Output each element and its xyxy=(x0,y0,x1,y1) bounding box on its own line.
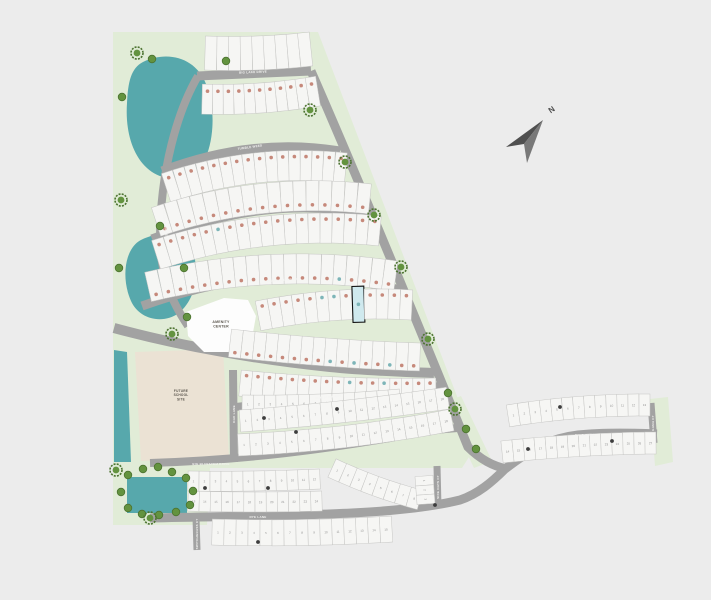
lot-group: 23 xyxy=(600,433,612,455)
tree-icon xyxy=(118,93,126,101)
lot-number: 10 xyxy=(291,478,295,482)
lot-group xyxy=(306,181,319,211)
lot-number: 21 xyxy=(281,500,285,504)
tree-icon xyxy=(186,501,194,509)
lot-number: 18 xyxy=(550,445,554,449)
lot-group: 1 xyxy=(238,433,251,456)
lot-number: 11 xyxy=(621,403,625,407)
tree-icon xyxy=(472,445,480,453)
lot-group xyxy=(340,290,353,321)
lot-group: 23 xyxy=(299,491,311,511)
lot-row: 131415161718192021222324 xyxy=(188,491,323,512)
lot-number: 13 xyxy=(360,529,364,533)
lot-number: 26 xyxy=(638,441,642,445)
lot[interactable] xyxy=(328,290,342,321)
lot-group: 19 xyxy=(255,492,266,512)
lot-group xyxy=(246,255,261,286)
lot-group: 26 xyxy=(634,432,645,454)
lot-number: 19 xyxy=(259,500,263,504)
lot-group: 2 xyxy=(249,433,262,456)
map-marker-dot xyxy=(610,439,614,443)
lot-group: 3 xyxy=(210,471,221,491)
lot-group: 5 xyxy=(260,520,272,546)
lot-group xyxy=(328,290,342,321)
lot[interactable] xyxy=(240,36,252,70)
tree-icon xyxy=(168,468,176,476)
lot-group xyxy=(336,339,350,368)
tree-icon xyxy=(180,264,188,272)
lot-group xyxy=(223,84,234,114)
lot-row: 123456789101112131415 xyxy=(212,516,393,546)
lot-number: 15 xyxy=(384,527,388,531)
lot-group xyxy=(388,289,401,319)
lot-number: 22 xyxy=(594,443,598,447)
lot-group xyxy=(331,181,345,212)
lot-group xyxy=(312,337,326,366)
lot-status-dot xyxy=(216,89,220,93)
lot-group: 7 xyxy=(284,520,296,546)
lot-group: 4 xyxy=(274,406,287,429)
lot-number: 23 xyxy=(605,442,609,446)
lot-group: 10 xyxy=(320,519,333,545)
lot-group: 10 xyxy=(606,394,618,416)
lot-group xyxy=(205,36,218,70)
pond xyxy=(127,477,187,513)
tree-icon xyxy=(452,406,459,413)
lot-group: 2 xyxy=(416,485,435,496)
lot-group: 10 xyxy=(287,470,299,490)
lot-group: 20 xyxy=(266,492,277,512)
map-marker-dot xyxy=(526,447,530,451)
tree-icon xyxy=(148,55,156,63)
lot-group xyxy=(296,254,309,284)
lot-number: 10 xyxy=(610,404,614,408)
tree-icon xyxy=(182,474,190,482)
lot-number: 20 xyxy=(572,444,576,448)
lot[interactable] xyxy=(202,84,213,114)
lot-group xyxy=(202,84,213,114)
lot-group: 12 xyxy=(309,469,321,489)
lot-group: 7 xyxy=(572,396,585,419)
lot[interactable] xyxy=(205,36,218,70)
lot-group xyxy=(263,35,277,70)
lot-group: 14 xyxy=(367,517,380,544)
lot-group: 21 xyxy=(578,434,590,457)
lot-group: 5 xyxy=(550,398,563,421)
lot-group xyxy=(408,343,421,371)
lot-group xyxy=(293,181,306,211)
lot-group: 7 xyxy=(309,428,323,451)
lot[interactable] xyxy=(265,151,278,182)
lot-number: 11 xyxy=(302,478,306,482)
lot-group xyxy=(355,214,369,245)
tree-icon xyxy=(147,515,154,522)
lot-status-dot xyxy=(394,381,398,385)
lot-group xyxy=(356,183,372,214)
lot-number: 23 xyxy=(304,500,308,504)
lot-group: 17 xyxy=(534,437,547,460)
lot-group xyxy=(277,151,290,181)
tree-icon xyxy=(124,504,132,512)
lot-group: 2 xyxy=(224,519,236,545)
tree-icon xyxy=(425,336,432,343)
lot-status-dot xyxy=(324,217,328,221)
lot-group: 19 xyxy=(556,435,569,458)
lot-group xyxy=(233,84,245,114)
lot-status-dot xyxy=(417,381,421,385)
lot-group: 13 xyxy=(355,517,368,544)
lot-group: 3 xyxy=(236,520,248,546)
lot-group: 3 xyxy=(416,494,435,505)
lot-group: 3 xyxy=(261,432,274,455)
lot-group xyxy=(343,213,356,244)
map-marker-dot xyxy=(558,405,562,409)
lot-number: 14 xyxy=(372,528,376,532)
tree-icon xyxy=(222,57,230,65)
lot-group xyxy=(284,214,298,245)
lot-group xyxy=(229,36,241,70)
lot-number: 17 xyxy=(237,500,241,504)
lot-number: 22 xyxy=(292,500,296,504)
map-marker-dot xyxy=(262,416,266,420)
lot[interactable] xyxy=(229,36,241,70)
tree-icon xyxy=(398,264,405,271)
street-name-label: GAMA CT xyxy=(651,415,655,431)
lot-group xyxy=(348,340,362,369)
lot-number: 25 xyxy=(627,442,631,446)
lot-group: 8 xyxy=(584,395,596,418)
lot-group xyxy=(308,213,320,243)
lot-number: 24 xyxy=(315,499,319,503)
tree-icon xyxy=(183,313,191,321)
lot-group xyxy=(364,289,376,319)
lot-group: 11 xyxy=(298,469,310,489)
lot[interactable] xyxy=(280,181,294,212)
lot[interactable] xyxy=(333,255,347,286)
lot-group: 20 xyxy=(567,434,579,457)
lot-group xyxy=(360,340,373,369)
tree-icon xyxy=(154,463,162,471)
lot-group xyxy=(320,213,332,243)
lot-group xyxy=(296,213,309,243)
lot-group: 1 xyxy=(415,475,434,486)
lot-group: 11 xyxy=(617,394,629,416)
lot-group: 16 xyxy=(221,492,232,512)
lot-group xyxy=(376,289,388,319)
lot-group: 13 xyxy=(639,394,650,416)
lot-group: 21 xyxy=(277,492,288,512)
tree-icon xyxy=(113,467,120,474)
lot-group xyxy=(332,213,345,243)
lot-group: 6 xyxy=(297,404,311,427)
street-name-label: BIG BLUESTEM DRIVE xyxy=(192,462,229,466)
lot-group: 12 xyxy=(628,394,639,416)
lot-group xyxy=(352,286,365,322)
lot[interactable] xyxy=(343,182,358,213)
lot-group: 25 xyxy=(623,432,635,454)
amenity-center-label: AMENITY xyxy=(212,320,230,324)
tree-icon xyxy=(169,331,176,338)
street-name-label: RYE LANE xyxy=(249,515,266,519)
tree-icon xyxy=(117,488,125,496)
lot-status-dot xyxy=(301,276,305,280)
lot[interactable] xyxy=(244,83,256,113)
map-marker-dot xyxy=(335,407,339,411)
lot[interactable] xyxy=(213,84,224,114)
lot-group: 5 xyxy=(232,471,243,491)
lot[interactable] xyxy=(217,36,229,70)
lot-number: 12 xyxy=(348,529,352,533)
lot-group xyxy=(240,36,252,70)
amenity-center-label: CENTER xyxy=(213,325,229,329)
lot-number: 16 xyxy=(225,500,229,504)
street-name-label: PALO DURO xyxy=(575,433,596,437)
lot-number: 20 xyxy=(270,500,274,504)
lot-row xyxy=(205,32,313,70)
tree-icon xyxy=(118,197,125,204)
map-marker-dot xyxy=(203,486,207,490)
lot-group: 9 xyxy=(595,395,607,418)
lot-number: 11 xyxy=(336,530,340,534)
lot-group: 9 xyxy=(308,519,321,545)
tree-icon xyxy=(444,389,452,397)
lot-group: 17 xyxy=(233,492,244,512)
lot-group: 12 xyxy=(343,518,356,544)
lot[interactable] xyxy=(271,214,285,245)
lot-group: 6 xyxy=(272,520,284,546)
tree-icon xyxy=(134,50,141,57)
lot-number: 19 xyxy=(561,445,565,449)
lot-group: 14 xyxy=(199,491,211,511)
lot-group xyxy=(343,182,358,213)
lot-group: 6 xyxy=(297,429,311,452)
lot-number: 10 xyxy=(324,530,328,534)
lot[interactable] xyxy=(263,35,277,70)
lot-group: 18 xyxy=(244,492,255,512)
site-map-page: 1234567891011121314123456789101112131415… xyxy=(0,0,711,600)
lot-group: 22 xyxy=(288,492,300,512)
lot-group xyxy=(271,214,285,245)
lot-group: 18 xyxy=(545,436,558,459)
lot-group: 24 xyxy=(311,491,323,511)
lot-group: 27 xyxy=(645,432,656,454)
lot-row: 123456789101112 xyxy=(188,469,321,491)
lot-status-dot xyxy=(380,293,384,297)
future-site-label: SITE xyxy=(177,397,185,401)
lot-status-dot xyxy=(311,203,315,207)
lot-group xyxy=(213,84,224,114)
lot[interactable] xyxy=(367,215,382,246)
lot[interactable] xyxy=(233,84,245,114)
lot-group: 1 xyxy=(239,409,252,432)
lot-group: 15 xyxy=(379,516,392,543)
street-name-label: SWITCHGRASS CT xyxy=(195,519,199,550)
lot-number: 12 xyxy=(313,477,317,481)
lot-group: 11 xyxy=(332,518,345,544)
map-marker-dot xyxy=(433,503,437,507)
tree-icon xyxy=(139,465,147,473)
street-name-label: SIDE OATS CT xyxy=(436,475,440,499)
tree-icon xyxy=(307,107,314,114)
lot-number: 14 xyxy=(203,500,207,504)
lot-group xyxy=(280,181,294,212)
tree-icon xyxy=(462,425,470,433)
lot-group xyxy=(318,181,331,211)
map-marker-dot xyxy=(266,486,270,490)
tree-icon xyxy=(189,487,197,495)
lot-group: 8 xyxy=(296,519,308,545)
lot-number: 27 xyxy=(649,441,653,445)
lot[interactable] xyxy=(284,214,298,245)
lot-number: 15 xyxy=(214,500,218,504)
lot-row: 123 xyxy=(415,475,435,504)
lot-group xyxy=(300,151,312,181)
lot-group xyxy=(321,254,335,284)
lot-group xyxy=(384,342,397,371)
lot[interactable] xyxy=(356,183,372,214)
lot[interactable] xyxy=(246,255,261,286)
lot-number: 12 xyxy=(632,403,636,407)
lot-group: 6 xyxy=(561,397,574,420)
lot-group xyxy=(300,336,314,365)
lot-group xyxy=(252,36,265,70)
map-marker-dot xyxy=(256,540,260,544)
lot-group: 24 xyxy=(612,433,624,455)
tree-icon xyxy=(115,264,123,272)
lot[interactable] xyxy=(252,36,265,70)
community-site-map-canvas[interactable]: 1234567891011121314123456789101112131415… xyxy=(0,0,711,600)
lot-group xyxy=(333,255,347,286)
lot-group: 7 xyxy=(254,471,265,491)
lot-group xyxy=(324,338,338,367)
lot-number: 21 xyxy=(583,443,587,447)
lot[interactable] xyxy=(355,214,369,245)
lot-number: 24 xyxy=(616,442,620,446)
lot[interactable] xyxy=(223,84,234,114)
lot-group xyxy=(217,36,229,70)
lot-group: 4 xyxy=(221,471,232,491)
lot-group: 2 xyxy=(251,408,264,431)
map-marker-dot xyxy=(294,430,298,434)
lot-group: 9 xyxy=(276,470,288,490)
lot-status-dot xyxy=(405,381,409,385)
tree-icon xyxy=(371,212,378,219)
lot-group xyxy=(265,151,278,182)
lot-number: 13 xyxy=(643,403,647,407)
lot-group: 15 xyxy=(210,492,222,512)
lot-group xyxy=(399,289,412,320)
lot-group: 1 xyxy=(212,519,225,545)
tree-icon xyxy=(172,508,180,516)
tree-icon xyxy=(342,159,349,166)
lot-group xyxy=(289,151,301,181)
tree-icon xyxy=(124,471,132,479)
lot-group xyxy=(308,254,321,284)
lot-group xyxy=(396,342,409,370)
lot-group xyxy=(372,341,385,370)
lot-number: 18 xyxy=(248,500,252,504)
lot-group xyxy=(244,83,256,113)
lot-group xyxy=(311,151,324,181)
lot-group xyxy=(367,215,382,246)
future-site-parcel xyxy=(135,349,229,461)
tree-icon xyxy=(156,222,164,230)
street-name-label: OAK LANE xyxy=(232,405,236,423)
lot-group: 4 xyxy=(273,431,287,454)
lot-group: 6 xyxy=(243,471,254,491)
